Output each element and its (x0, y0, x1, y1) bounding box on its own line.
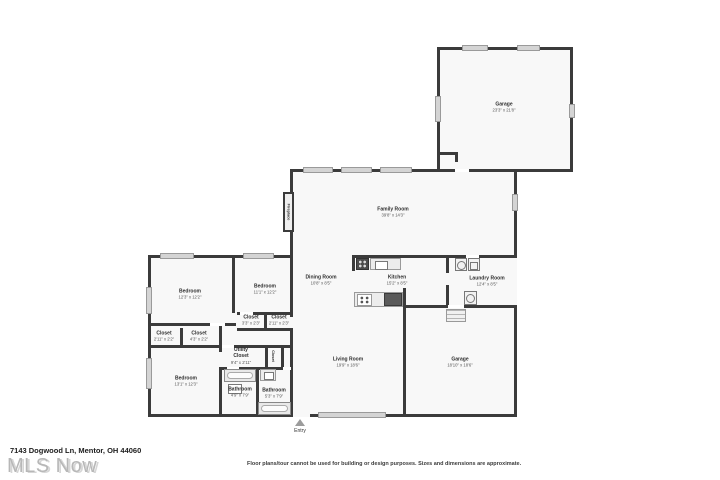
room-label-living-room: Living Room19'9" x 18'6" (333, 356, 363, 368)
wall-segment (403, 414, 517, 417)
window (569, 104, 575, 118)
room-label-bedroom-2: Bedroom11'1" x 12'2" (254, 283, 277, 295)
room-label-kitchen: Kitchen15'2" x 8'5" (387, 274, 408, 286)
wall-segment (180, 328, 183, 345)
room-label-garage-top: Garage23'3" x 21'8" (493, 101, 516, 113)
window (341, 167, 372, 173)
room-label-bathroom-2: Bathroom5'3" x 7'9" (262, 387, 286, 399)
room-label-bathroom-1: Bathroom4'9" x 7'9" (228, 386, 252, 398)
wall-segment (352, 255, 355, 271)
wall-segment (148, 345, 219, 348)
floor-plan: Fireplace Garage23'3" x 21'8" Family Roo… (0, 0, 720, 480)
window (146, 287, 152, 314)
bathtub-icon (224, 369, 256, 382)
cooktop-icon (357, 294, 372, 306)
kitchen-counter (370, 258, 401, 270)
bathroom-sink-icon (264, 372, 274, 380)
door-opening (448, 305, 464, 308)
window (146, 358, 152, 389)
wall-segment (290, 230, 293, 258)
room-label-family-room: Family Room39'8" x 14'3" (377, 206, 408, 218)
wall-segment (265, 345, 268, 367)
window (435, 96, 441, 122)
window (517, 45, 540, 51)
mls-now-watermark: MLS Now (7, 455, 97, 478)
wall-segment (290, 255, 293, 317)
water-heater-icon (464, 291, 477, 305)
address-text: 7143 Dogwood Ln, Mentor, OH 44060 (10, 446, 141, 455)
wall-segment (237, 328, 293, 331)
wall-segment (514, 305, 517, 417)
kitchen-sink-icon (375, 261, 388, 270)
room-label-closet-1: Closet3'3" x 2'3" (242, 314, 260, 326)
room-label-closet-4: Closet4'3" x 2'2" (190, 330, 208, 342)
stairs-icon (446, 309, 466, 322)
room-label-closet-3: Closet2'11" x 2'2" (154, 330, 174, 342)
window (243, 253, 274, 259)
wall-segment (403, 305, 406, 417)
wall-segment (455, 152, 458, 162)
refrigerator-icon (384, 293, 402, 306)
fireplace-label: Fireplace (287, 204, 291, 221)
room-label-utility-closet: Utility Closet9'4" x 2'11" (227, 347, 255, 365)
room-label-closet-2: Closet2'11" x 2'3" (269, 314, 289, 326)
disclaimer-text: Floor plans/tour cannot be used for buil… (247, 461, 521, 467)
door-opening (210, 323, 225, 326)
entry-arrow-icon (295, 419, 305, 426)
window (160, 253, 194, 259)
wall-segment (232, 255, 235, 313)
window (512, 194, 518, 211)
window (318, 412, 386, 418)
room-label-garage-bottom: Garage18'10" x 18'6" (447, 356, 472, 368)
wall-segment (446, 255, 449, 273)
room-label-dining-room: Dining Room10'8" x 8'5" (305, 274, 336, 286)
entry-label: Entry (294, 428, 306, 434)
wall-segment (281, 345, 284, 367)
wall-segment (219, 326, 222, 352)
wall-segment (514, 172, 517, 258)
wall-segment (219, 368, 222, 417)
room-label-laundry-room: Laundry Room12'4" x 8'5" (469, 275, 504, 287)
washer-icon (455, 258, 467, 271)
room-label-bedroom-1: Bedroom12'3" x 12'2" (179, 288, 202, 300)
dryer-icon (468, 258, 480, 271)
door-opening (283, 367, 291, 370)
window (380, 167, 412, 173)
door-opening (455, 169, 469, 172)
vanity-counter (260, 369, 276, 381)
kitchen-lower-counter (354, 292, 403, 307)
wall-segment (437, 47, 573, 50)
window (462, 45, 488, 51)
stove-icon (356, 258, 369, 270)
room-label-closet-vertical: Closet (271, 350, 275, 362)
bathtub-icon (258, 402, 291, 415)
wall-segment (148, 255, 151, 417)
window (303, 167, 333, 173)
room-label-bedroom-3: Bedroom13'1" x 12'3" (175, 375, 198, 387)
